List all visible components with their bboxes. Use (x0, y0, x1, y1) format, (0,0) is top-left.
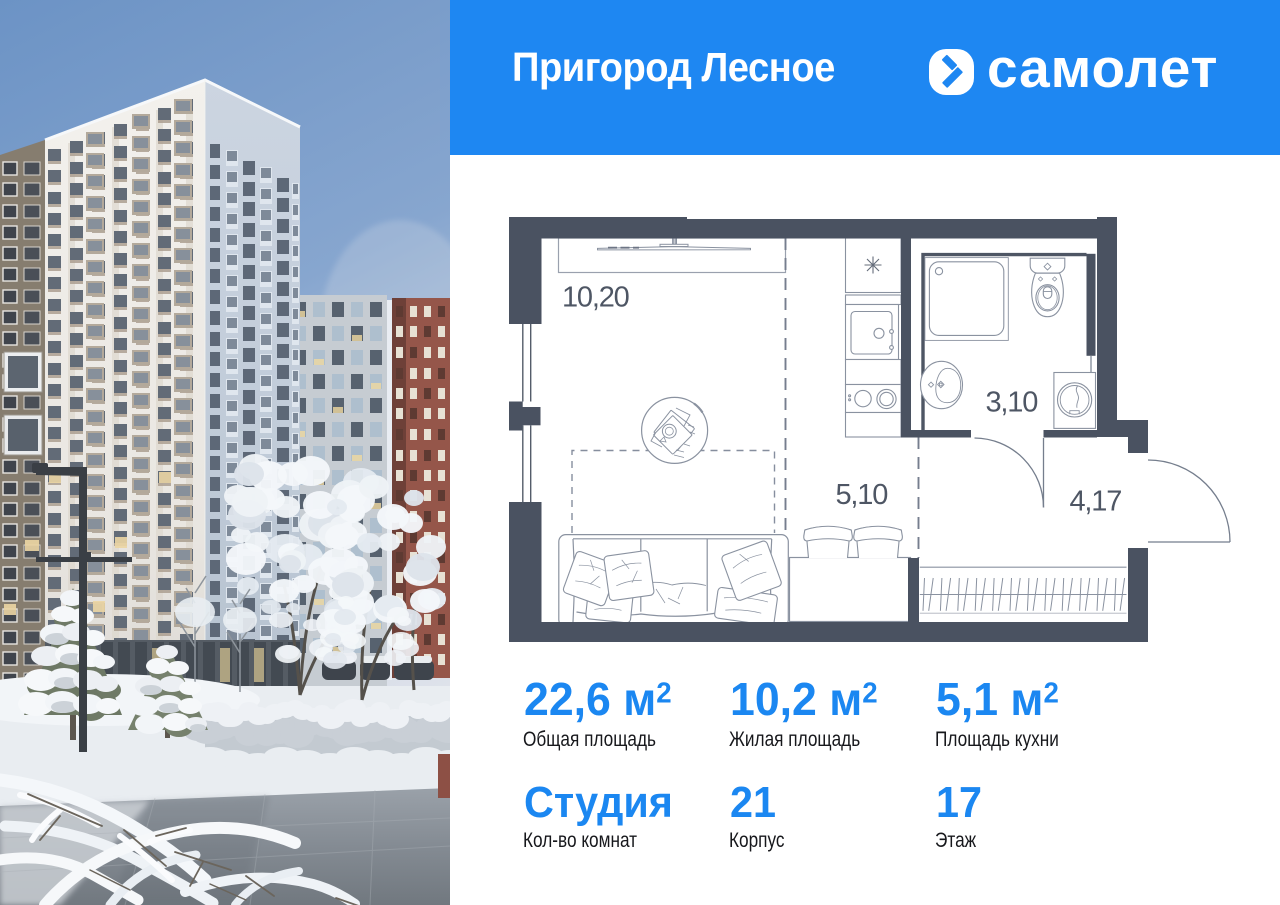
svg-text:3,10: 3,10 (986, 387, 1038, 419)
svg-text:10,20: 10,20 (562, 282, 629, 314)
svg-text:4,17: 4,17 (1070, 486, 1122, 518)
svg-text:5,10: 5,10 (836, 479, 888, 511)
